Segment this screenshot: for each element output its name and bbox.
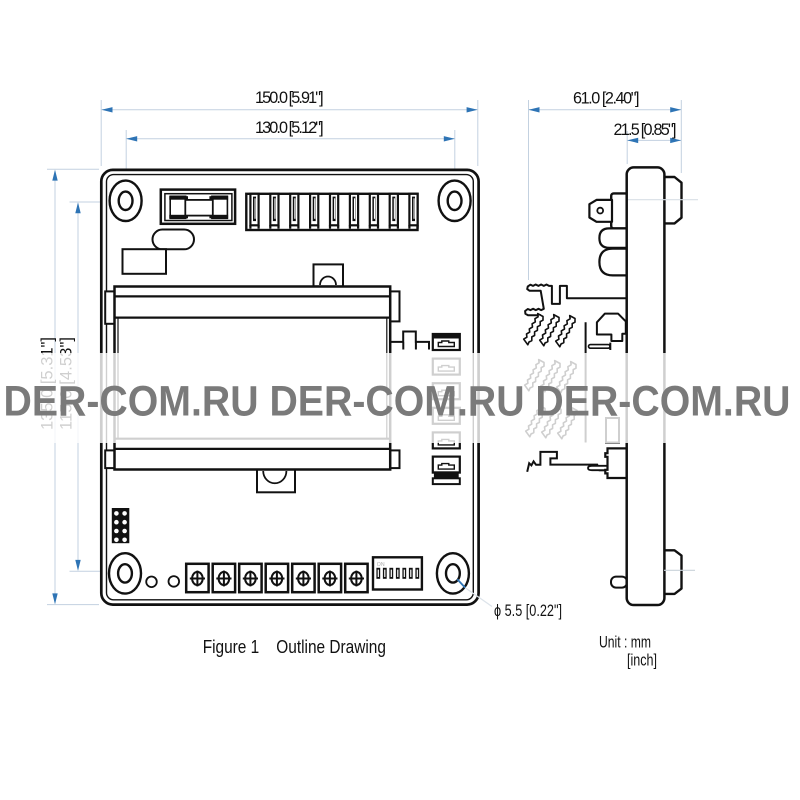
svg-text:ϕ 5.5 [0.22"]: ϕ 5.5 [0.22"] <box>494 602 562 620</box>
svg-text:150.0 [5.91"]: 150.0 [5.91"] <box>255 89 324 107</box>
svg-text:Figure 1 Outline Drawing: Figure 1 Outline Drawing <box>203 636 386 657</box>
svg-text:DER-COM.RU DER-COM.RU DER-COM.: DER-COM.RU DER-COM.RU DER-COM.RU <box>4 378 791 425</box>
svg-text:61.0 [2.40"]: 61.0 [2.40"] <box>573 89 640 107</box>
svg-text:[inch]: [inch] <box>627 651 657 670</box>
svg-text:21.5 [0.85"]: 21.5 [0.85"] <box>614 121 677 139</box>
svg-text:Unit : mm: Unit : mm <box>599 633 651 652</box>
svg-text:130.0 [5.12"]: 130.0 [5.12"] <box>255 119 324 137</box>
svg-text:ON: ON <box>377 562 385 568</box>
